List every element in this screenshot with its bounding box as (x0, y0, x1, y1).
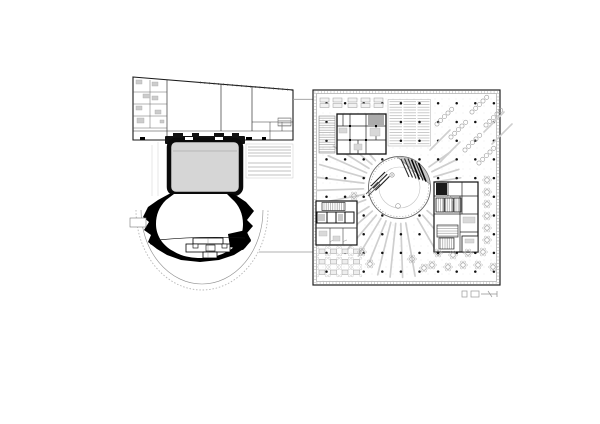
column-dot (418, 252, 421, 255)
core-block-east (434, 182, 478, 252)
workstation-table (342, 260, 348, 265)
lecture-seating-block (388, 100, 431, 147)
column-dot (400, 102, 403, 105)
column-dot (362, 214, 365, 217)
column-dot (455, 139, 458, 142)
service-block-sw (316, 201, 357, 245)
west-stair-strip (319, 116, 335, 153)
desk (361, 104, 370, 108)
column-dot (362, 177, 365, 180)
workstation-table (342, 270, 348, 275)
meeting-room-block-nw (337, 114, 386, 154)
column-dot (344, 177, 347, 180)
floor-plan-drawing (0, 0, 600, 424)
column-dot (437, 270, 440, 273)
workstation-table (331, 249, 337, 254)
column-dot (493, 252, 496, 255)
column-dot (437, 177, 440, 180)
column-dot (437, 158, 440, 161)
column-dot (381, 158, 384, 161)
stage-floor (169, 140, 241, 194)
column-dot (493, 177, 496, 180)
column-dot (474, 270, 477, 273)
column-dot (474, 158, 477, 161)
desk (320, 98, 329, 102)
column-dot (362, 196, 365, 199)
floor-plan-sheet (0, 0, 600, 424)
desk (348, 98, 357, 102)
column-dot (362, 270, 365, 273)
column-dot (400, 139, 403, 142)
column-dot (455, 102, 458, 105)
column-dot (455, 177, 458, 180)
column-dot (344, 158, 347, 161)
wing-stair (278, 118, 291, 126)
column-dot (455, 158, 458, 161)
workstation-table (354, 260, 360, 265)
desk (361, 98, 370, 102)
column-dot (493, 102, 496, 105)
column-dot (418, 233, 421, 236)
column-dot (400, 121, 403, 124)
workstation-table (319, 249, 325, 254)
workstation-table (319, 260, 325, 265)
desk (333, 98, 342, 102)
column-dot (474, 177, 477, 180)
workstation-table (342, 249, 348, 254)
workstation-table (354, 270, 360, 275)
column-dot (493, 158, 496, 161)
sheet-background (0, 0, 600, 424)
column-dot (455, 270, 458, 273)
column-dot (493, 233, 496, 236)
desk (320, 104, 329, 108)
column-dot (381, 214, 384, 217)
stage (165, 133, 245, 194)
column-dot (418, 102, 421, 105)
column-dot (381, 233, 384, 236)
column-dot (474, 121, 477, 124)
column-dot (325, 196, 328, 199)
column-dot (325, 270, 328, 273)
desk (348, 104, 357, 108)
column-dot (455, 121, 458, 124)
column-dot (400, 270, 403, 273)
storage-rows (246, 144, 293, 178)
office-plan (313, 90, 512, 285)
workstation-table (331, 270, 337, 275)
column-dot (362, 233, 365, 236)
column-dot (493, 214, 496, 217)
column-dot (381, 252, 384, 255)
column-dot (418, 158, 421, 161)
side-entry-notch (130, 218, 146, 227)
workstation-table (354, 249, 360, 254)
desk (374, 104, 383, 108)
column-dot (325, 158, 328, 161)
column-dot (400, 233, 403, 236)
column-dot (344, 102, 347, 105)
column-dot (381, 270, 384, 273)
east-stair (437, 225, 458, 237)
workstation-table (319, 270, 325, 275)
column-dot (474, 102, 477, 105)
column-dot (493, 196, 496, 199)
column-dot (418, 121, 421, 124)
column-dot (325, 177, 328, 180)
column-dot (437, 102, 440, 105)
desk (374, 98, 383, 102)
column-dot (418, 270, 421, 273)
column-dot (418, 139, 421, 142)
column-dot (418, 214, 421, 217)
column-dot (362, 158, 365, 161)
column-dot (400, 252, 403, 255)
column-dot (344, 196, 347, 199)
workstation-table (331, 260, 337, 265)
desk (333, 104, 342, 108)
